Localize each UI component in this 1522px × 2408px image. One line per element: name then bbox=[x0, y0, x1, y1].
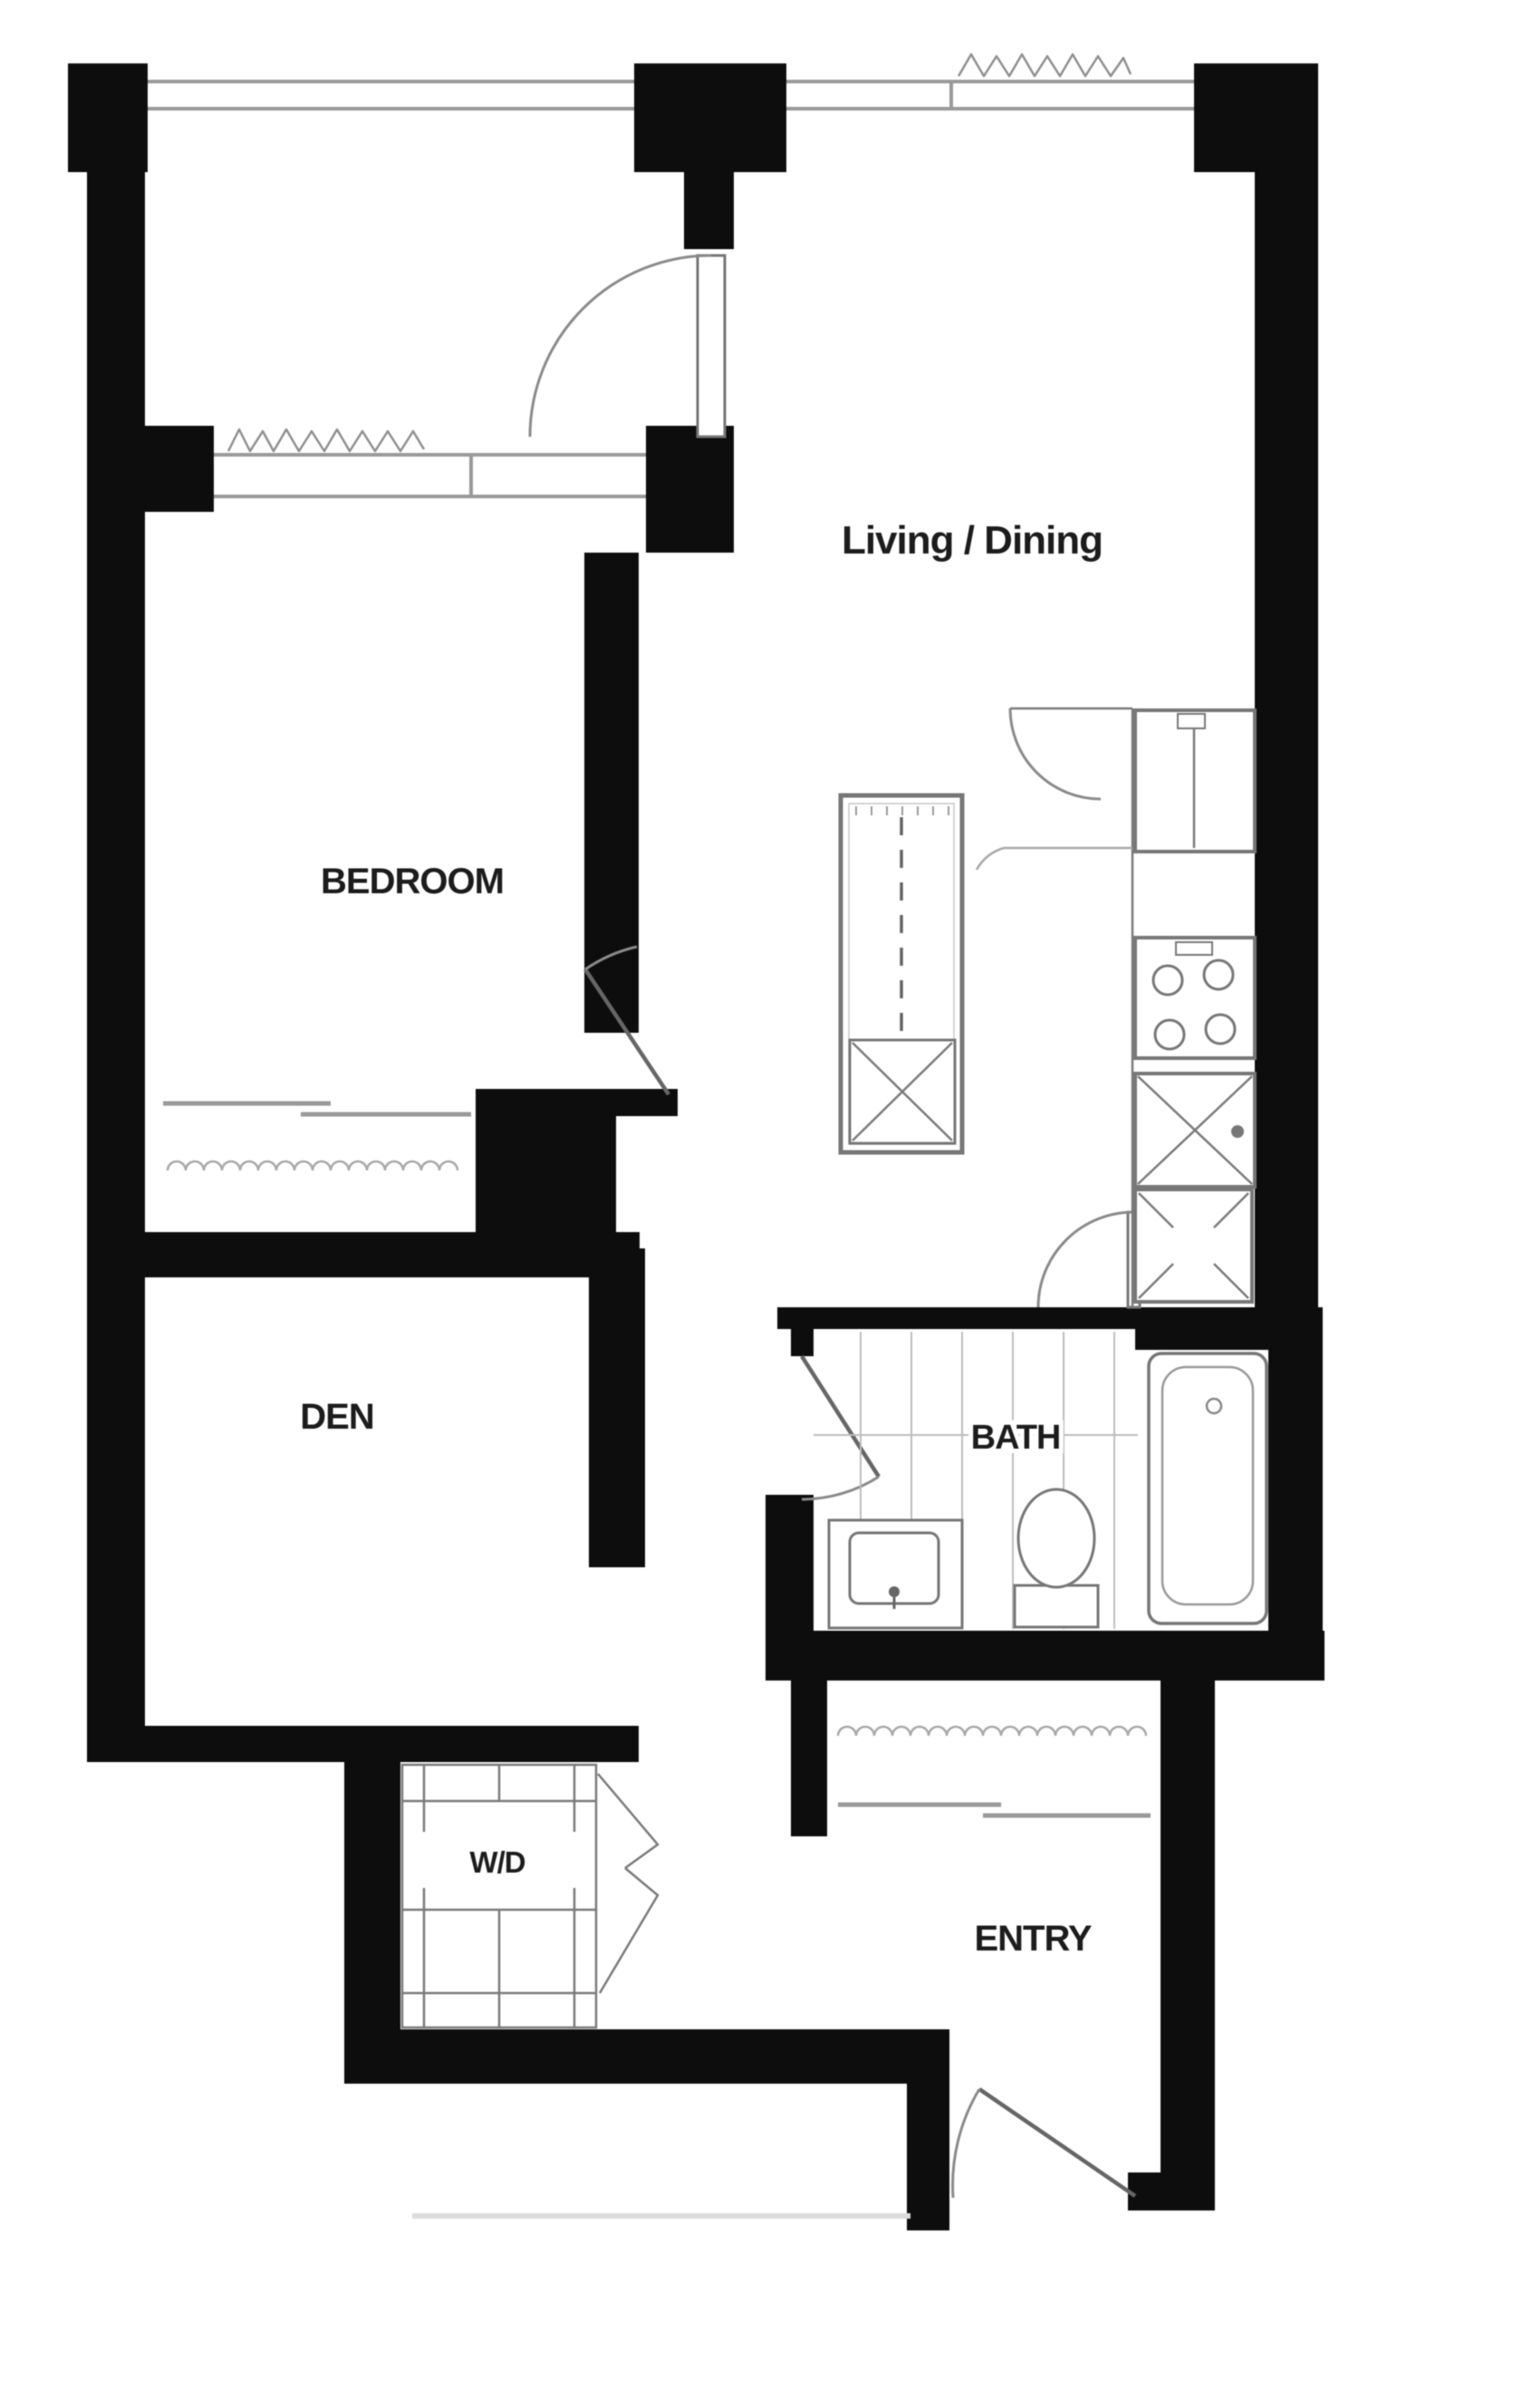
wall-bath-door-stub bbox=[791, 1327, 814, 1356]
balcony-window bbox=[148, 82, 634, 109]
room-label-bedroom: BEDROOM bbox=[321, 862, 504, 901]
entry-door-swing bbox=[953, 2089, 979, 2198]
closet-rod-hangers-icon bbox=[168, 1161, 458, 1170]
wall-top-middle-block bbox=[634, 63, 786, 172]
curtain-squiggle-icon bbox=[228, 429, 424, 451]
kitchen bbox=[841, 708, 1255, 1307]
faucet-icon bbox=[889, 1586, 900, 1597]
bathtub bbox=[1149, 1353, 1267, 1623]
wall-entry-door-hinge-block bbox=[1128, 2172, 1164, 2211]
toilet bbox=[1015, 1489, 1098, 1627]
balcony-door-swing bbox=[530, 255, 711, 437]
room-label-wd: W/D bbox=[469, 1845, 525, 1879]
counter-hook bbox=[977, 848, 1004, 870]
wall-right-exterior bbox=[1255, 63, 1318, 1350]
wall-bath-right bbox=[1268, 1307, 1323, 1681]
wall-entry-closet-left bbox=[791, 1664, 827, 1836]
wall-balcony-bedroom-right-block bbox=[646, 426, 734, 553]
wall-closet-block bbox=[476, 1116, 616, 1248]
bedroom-closet bbox=[163, 1103, 471, 1170]
kitchen-sink bbox=[1135, 1074, 1255, 1187]
hall-door-swing bbox=[1038, 1212, 1133, 1307]
wall-bedroom-den-divider bbox=[87, 1232, 640, 1277]
wall-left-exterior bbox=[87, 118, 145, 1762]
cabinet-door-swing bbox=[1010, 708, 1101, 799]
room-label-entry: ENTRY bbox=[974, 1919, 1092, 1959]
washer-dryer bbox=[402, 1765, 596, 2028]
drain-icon bbox=[1207, 1399, 1221, 1413]
wall-bedroom-right bbox=[584, 553, 639, 1033]
entry-door bbox=[953, 2089, 1135, 2198]
curtain-squiggle-icon bbox=[958, 54, 1131, 76]
room-label-den: DEN bbox=[300, 1397, 373, 1437]
bath-door bbox=[802, 1356, 879, 1499]
refrigerator bbox=[1135, 710, 1255, 852]
wall-bath-bottom bbox=[766, 1631, 1325, 1681]
balcony-door-leaf bbox=[698, 255, 725, 437]
range-cooktop bbox=[1135, 938, 1255, 1058]
floor-plan-page: Living / Dining BEDROOM DEN BATH W/D ENT… bbox=[0, 0, 1522, 2408]
island-sink bbox=[850, 1040, 955, 1143]
wall-bath-top-east bbox=[1135, 1307, 1268, 1350]
wall-entry-right bbox=[1161, 1681, 1215, 2211]
toilet-tank bbox=[1015, 1585, 1098, 1627]
entry-closet bbox=[838, 1727, 1151, 1816]
wall-bath-top bbox=[777, 1307, 1140, 1329]
living-window bbox=[786, 54, 1194, 109]
hall-door bbox=[1038, 1212, 1140, 1307]
wall-balcony-living-divider bbox=[684, 172, 734, 249]
wall-entry-door-stub bbox=[907, 2084, 949, 2230]
floor-plan: Living / Dining BEDROOM DEN BATH W/D ENT… bbox=[0, 0, 1522, 2408]
bifold-panel-upper bbox=[598, 1774, 658, 1868]
bath-door-leaf bbox=[802, 1356, 879, 1477]
bathroom-vanity bbox=[829, 1520, 962, 1628]
wall-bedroom-door-header bbox=[476, 1089, 678, 1116]
entry-door-leaf bbox=[979, 2089, 1135, 2196]
wall-den-bottom bbox=[87, 1726, 639, 1762]
closet-rod-hangers-icon bbox=[838, 1727, 1146, 1736]
toilet-bowl bbox=[1018, 1489, 1094, 1587]
wall-bottom bbox=[344, 2029, 949, 2084]
wall-balcony-bedroom-left-block bbox=[87, 426, 214, 512]
room-label-bath: BATH bbox=[971, 1419, 1061, 1457]
bifold-panel-lower bbox=[600, 1868, 658, 1993]
balcony-door bbox=[530, 255, 725, 437]
bathroom bbox=[814, 1332, 1267, 1629]
wall-bath-left-lower bbox=[766, 1495, 814, 1635]
wd-bifold-door bbox=[598, 1774, 658, 1993]
bedroom-window bbox=[214, 429, 646, 496]
room-label-living-dining: Living / Dining bbox=[842, 518, 1103, 563]
kitchen-island bbox=[841, 795, 962, 1152]
wall-den-right bbox=[589, 1248, 645, 1567]
faucet-icon bbox=[1231, 1125, 1244, 1138]
dishwasher bbox=[1135, 1190, 1252, 1302]
